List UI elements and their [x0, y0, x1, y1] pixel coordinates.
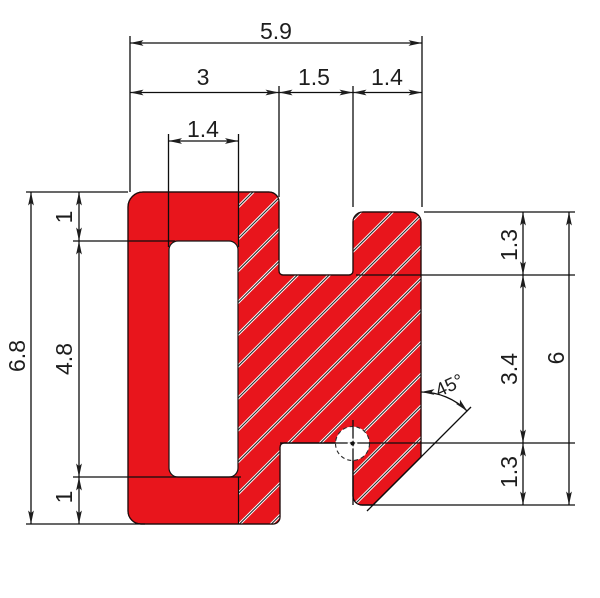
- svg-text:6: 6: [543, 352, 569, 365]
- svg-text:1.5: 1.5: [298, 64, 330, 90]
- svg-text:1.3: 1.3: [496, 456, 522, 488]
- svg-text:4.8: 4.8: [51, 343, 77, 375]
- svg-text:1: 1: [51, 491, 77, 504]
- svg-text:1.3: 1.3: [496, 229, 522, 261]
- svg-text:5.9: 5.9: [260, 18, 292, 44]
- svg-text:3: 3: [197, 64, 210, 90]
- svg-text:1.4: 1.4: [371, 64, 403, 90]
- svg-text:3.4: 3.4: [496, 353, 522, 385]
- svg-text:1: 1: [51, 211, 77, 224]
- svg-text:6.8: 6.8: [4, 340, 30, 372]
- svg-text:1.4: 1.4: [187, 116, 219, 142]
